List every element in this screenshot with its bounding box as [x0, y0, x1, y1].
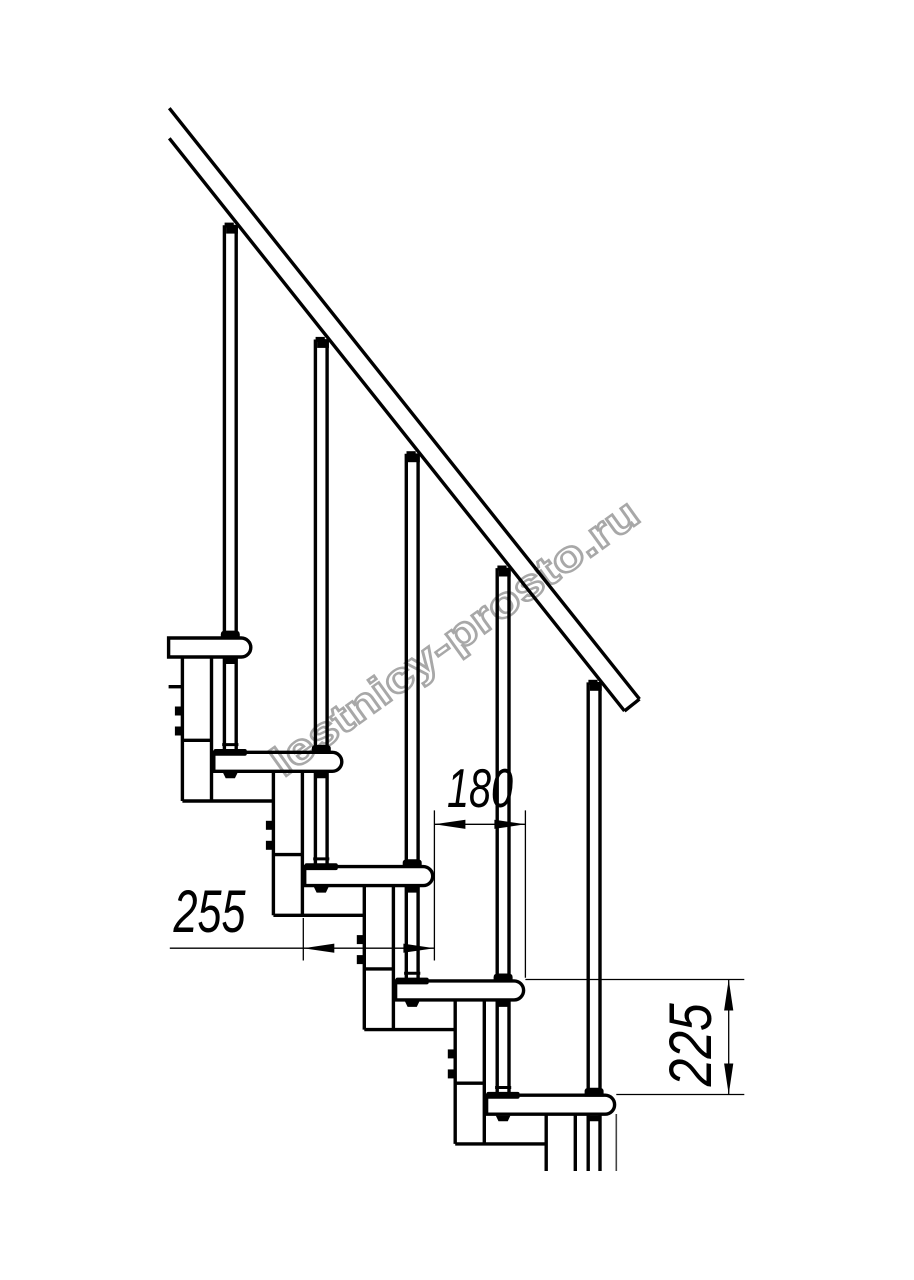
svg-text:180: 180 [447, 759, 513, 820]
svg-text:225: 225 [657, 1003, 724, 1087]
svg-text:255: 255 [173, 879, 247, 946]
